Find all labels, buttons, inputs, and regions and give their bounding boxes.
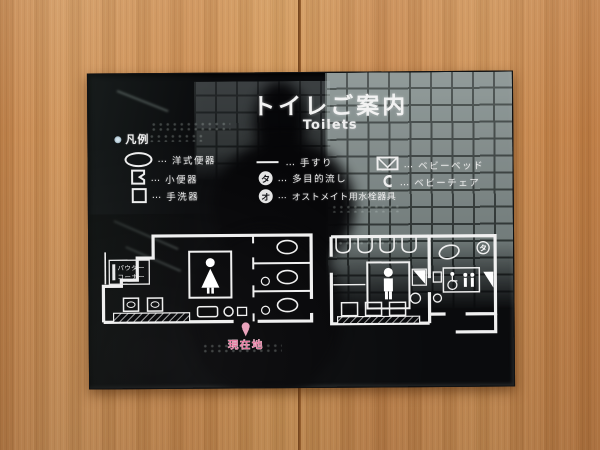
multipurpose-sink-icon: タ	[259, 171, 273, 185]
legend-dots: …	[157, 154, 167, 165]
legend-dots: …	[278, 173, 288, 184]
legend-dots: …	[400, 177, 410, 188]
legend-label: ベビーチェア	[414, 175, 480, 189]
floor-plan-map: パウダー コーナー	[97, 228, 502, 363]
legend-item-hand-basin: … 手洗器	[132, 188, 200, 203]
legend-item-handrail: … 手すり	[256, 155, 333, 170]
braille-dots	[148, 134, 204, 142]
sign-title: トイレご案内	[220, 86, 440, 122]
legend-item-urinal: … 小便器	[131, 169, 199, 188]
legend-item-baby-bed: … ベビーベッド	[376, 156, 484, 174]
handrail-icon	[257, 161, 279, 164]
legend-marker-icon	[114, 136, 121, 143]
legend-item-ostomate: オ … オストメイト用水栓器具	[259, 188, 397, 203]
legend-label: ベビーベッド	[418, 157, 484, 171]
mens-room	[331, 236, 430, 324]
baby-bed-icon	[376, 156, 398, 173]
powder-corner-line1: パウダー	[117, 263, 145, 272]
legend-label: 小便器	[165, 171, 198, 185]
legend-dots: …	[404, 159, 414, 170]
legend-item-multipurpose-sink: タ … 多目的流し	[259, 171, 348, 186]
current-location-label: 現在地	[228, 338, 264, 351]
ostomate-fixture-icon: オ	[259, 189, 273, 203]
hand-basin-icon	[132, 188, 147, 203]
legend-heading: 凡例	[125, 131, 149, 147]
current-location-marker: 現在地	[228, 322, 264, 351]
powder-corner-label: パウダー コーナー	[109, 260, 149, 284]
womens-room-pictogram	[189, 251, 231, 297]
photo-scene: トイレご案内 Toilets 凡例 … 洋式便器 … 小便器 … 手洗器 … 手…	[0, 0, 600, 450]
western-toilet-icon	[124, 152, 152, 167]
multipurpose-symbol: タ	[479, 243, 487, 253]
legend-label: 手洗器	[166, 188, 199, 202]
legend-label: 洋式便器	[172, 152, 216, 166]
toilet-guide-sign: トイレご案内 Toilets 凡例 … 洋式便器 … 小便器 … 手洗器 … 手…	[87, 71, 515, 390]
sign-subtitle: Toilets	[220, 117, 440, 134]
braille-dots	[150, 121, 230, 131]
legend-label: 手すり	[300, 155, 333, 169]
legend-label: 多目的流し	[292, 171, 347, 185]
powder-corner-line2: コーナー	[118, 273, 146, 281]
legend-dots: …	[278, 191, 287, 201]
urinal-icon	[131, 169, 146, 188]
legend-dots: …	[285, 157, 295, 168]
legend-item-baby-chair: … ベビーチェア	[381, 173, 481, 192]
braille-dots	[331, 204, 401, 212]
baby-chair-icon	[381, 173, 395, 191]
legend-item-western-toilet: … 洋式便器	[124, 152, 216, 168]
legend-heading-row: 凡例	[114, 131, 149, 147]
legend-dots: …	[152, 190, 162, 201]
legend-dots: …	[151, 173, 161, 184]
